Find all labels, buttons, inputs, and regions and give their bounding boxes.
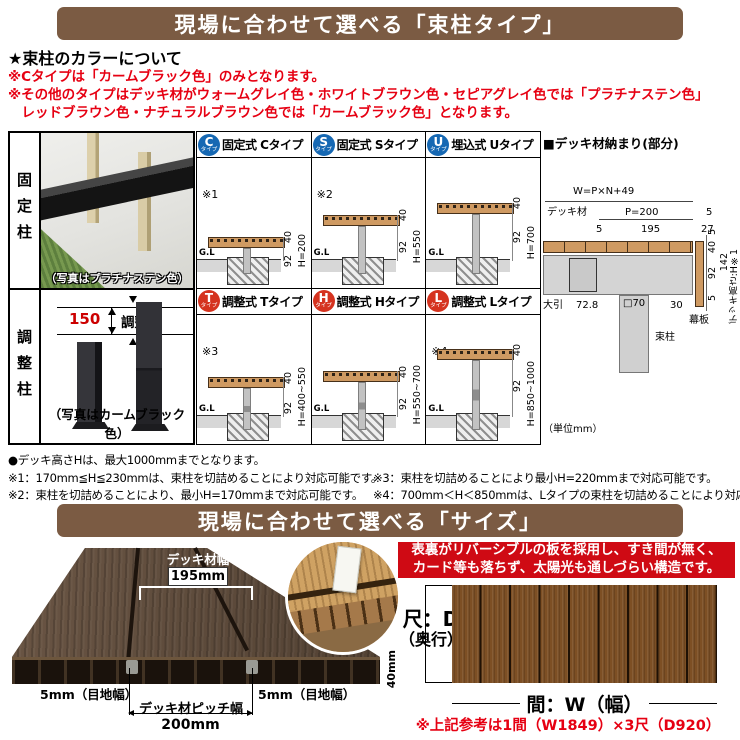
board-width-label: デッキ材幅 bbox=[156, 549, 240, 568]
type-title: 調整式 Hタイプ bbox=[337, 293, 419, 310]
type-diagram: G.L 40 92 H=700 bbox=[426, 158, 540, 288]
feature-line1: 表裏がリバーシブルの板を採用し、すき間が無く、 bbox=[398, 542, 735, 560]
deck-board-label: デッキ材 bbox=[547, 208, 587, 218]
fascia-label: 幕板 bbox=[689, 316, 709, 326]
type-title: 調整式 Tタイプ bbox=[222, 293, 302, 310]
type-cell-header: L タイプ 調整式 Lタイプ bbox=[426, 289, 540, 315]
dim-5-right: 5 bbox=[706, 208, 712, 218]
dim-92: 92 bbox=[399, 398, 409, 410]
deck-board bbox=[437, 203, 514, 214]
gl-label: G.L bbox=[199, 248, 215, 258]
type-note-ref: ※1 bbox=[202, 188, 218, 201]
type-cell-l: L タイプ 調整式 Lタイプ ※4 G.L 40 92 H=850~1000 bbox=[426, 289, 540, 445]
dim-line bbox=[649, 703, 717, 704]
deck-front-face bbox=[12, 657, 380, 684]
dim-line bbox=[452, 703, 520, 704]
adjustable-post-drawing: 150 調整 （写真はカームブラック色） bbox=[41, 290, 193, 445]
note-3: ※3：束柱を切詰めることにより最小H=220mmまで対応可能です。 bbox=[373, 470, 717, 486]
type-cell-header: H タイプ 調整式 Hタイプ bbox=[312, 289, 426, 315]
dim-height: H=400~550 bbox=[298, 367, 308, 426]
dim-5a: 5 bbox=[708, 229, 718, 235]
dim-height: H=550~700 bbox=[413, 365, 423, 424]
banner-title: 現場に合わせて選べる「束柱タイプ」 bbox=[175, 9, 566, 39]
detail-title: ■デッキ材納まり(部分) bbox=[543, 133, 679, 152]
dim-line-white bbox=[140, 586, 252, 588]
dim-92: 92 bbox=[513, 231, 523, 243]
gl-label: G.L bbox=[428, 248, 444, 258]
type-cell-header: C タイプ 固定式 Cタイプ bbox=[197, 132, 311, 158]
fixed-post-photo: （写真はプラチナステン色） bbox=[41, 133, 193, 288]
type-l-badge-icon: L タイプ bbox=[427, 290, 449, 312]
fascia-board bbox=[695, 241, 704, 307]
deck-height-label: デッキ高さ:H※1 bbox=[730, 249, 740, 324]
dim-tick-white bbox=[251, 586, 253, 600]
dim-5b: 5 bbox=[708, 295, 718, 301]
pitch-dim-line bbox=[129, 713, 252, 714]
badge-sub: タイプ bbox=[430, 304, 447, 310]
type-s-badge-icon: S タイプ bbox=[313, 134, 335, 156]
dim-728: 72.8 bbox=[576, 301, 598, 311]
type-title: 埋込式 Uタイプ bbox=[451, 136, 533, 153]
type-cell-s: S タイプ 固定式 Sタイプ ※2 G.L 40 92 H=550 bbox=[312, 132, 426, 288]
unit-label: （単位mm） bbox=[543, 425, 602, 435]
color-section-heading: ★束柱のカラーについて bbox=[8, 45, 182, 69]
arrow-down-icon bbox=[108, 327, 116, 334]
dim-height: H=550 bbox=[413, 230, 423, 263]
dim-height: H=700 bbox=[527, 226, 537, 259]
adjust-range-line-top bbox=[57, 307, 193, 308]
arrow-up-icon bbox=[108, 308, 116, 315]
gl-label: G.L bbox=[314, 248, 330, 258]
dim-40: 40 bbox=[284, 372, 294, 384]
dim-30: 30 bbox=[670, 301, 683, 311]
post-size-label: □70 bbox=[623, 299, 645, 309]
dim-195: 195 bbox=[641, 225, 660, 235]
width-dim-row: 間：W（幅） bbox=[452, 690, 717, 717]
color-notes: ※Cタイプは「カームブラック色」のみとなります。 ※その他のタイプはデッキ材がウ… bbox=[8, 69, 709, 123]
section-banner-sizes: 現場に合わせて選べる「サイズ」 bbox=[57, 504, 683, 537]
pitch-label: デッキ材ピッチ幅 bbox=[116, 698, 266, 717]
note-1: ※1：170mm≦H≦230mmは、束柱を切詰めることにより対応可能です。 bbox=[8, 470, 382, 486]
post-type-grid: C タイプ 固定式 Cタイプ ※1 G.L 40 92 H=200 bbox=[196, 131, 541, 445]
post-bar bbox=[472, 214, 480, 274]
joint-width-label-right: 5mm（目地幅） bbox=[258, 684, 355, 703]
adjustable-post-row: 調整柱 150 調整 （写真はカームブラック色） bbox=[10, 290, 193, 445]
dim-p200: P=200 bbox=[625, 208, 659, 218]
reference-size-note: ※上記参考は1間（W1849）×3尺（D920） bbox=[398, 714, 738, 735]
type-diagram: G.L 40 92 H=550~700 bbox=[312, 315, 426, 445]
dim-40: 40 bbox=[513, 344, 523, 356]
type-note-ref: ※3 bbox=[202, 345, 218, 358]
fixed-photo-caption: （写真はプラチナステン色） bbox=[41, 270, 193, 286]
adjustable-post-label: 調整柱 bbox=[14, 329, 35, 407]
adjust-value: 150 bbox=[69, 310, 100, 328]
badge-letter: C bbox=[205, 136, 214, 148]
deck-plan-view bbox=[452, 585, 717, 683]
board-joint-clip bbox=[126, 660, 138, 674]
color-note-line3: レッドブラウン色・ナチュラルブラウン色では「カームブラック色」となります。 bbox=[8, 105, 709, 123]
fixed-post-label: 固定柱 bbox=[14, 172, 35, 250]
dim-92: 92 bbox=[399, 241, 409, 253]
depth-dim-bracket bbox=[425, 585, 452, 683]
note-2: ※2：束柱を切詰めることにより、最小H=170mmまで対応可能です。 bbox=[8, 487, 363, 503]
deck-board bbox=[208, 237, 285, 248]
dim-line bbox=[599, 219, 693, 220]
gl-label: G.L bbox=[199, 404, 215, 414]
type-h-badge-icon: H タイプ bbox=[313, 290, 335, 312]
post-bar bbox=[472, 360, 480, 430]
dim-tick-white bbox=[139, 586, 141, 600]
deck-board bbox=[208, 377, 285, 388]
dim-40: 40 bbox=[284, 231, 294, 243]
type-diagram: ※4 G.L 40 92 H=850~1000 bbox=[426, 315, 540, 445]
dim-line bbox=[545, 201, 693, 202]
type-title: 固定式 Cタイプ bbox=[222, 136, 303, 153]
note-4: ※4：700mm＜H＜850mmは、Lタイプの束柱を切詰めることにより対応可能で… bbox=[373, 487, 740, 503]
badge-letter: S bbox=[319, 136, 328, 148]
dim-40: 40 bbox=[399, 209, 409, 221]
post-photo-panel: 固定柱 （写真はプラチナステン色） 調整柱 150 bbox=[8, 131, 195, 445]
deck-board bbox=[323, 215, 400, 226]
dim-height: H=200 bbox=[298, 234, 308, 267]
deck-board bbox=[323, 371, 400, 382]
gl-label: G.L bbox=[314, 404, 330, 414]
dimension-line bbox=[397, 215, 398, 261]
adjust-range-line-bottom bbox=[57, 334, 193, 335]
post-bar bbox=[243, 248, 251, 274]
dim-92: 92 bbox=[513, 380, 523, 392]
dim-height: H=850~1000 bbox=[527, 361, 537, 426]
section-banner-post-types: 現場に合わせて選べる「束柱タイプ」 bbox=[57, 7, 683, 40]
type-cell-h: H タイプ 調整式 Hタイプ G.L 40 92 H=550~700 bbox=[312, 289, 426, 445]
type-u-badge-icon: U タイプ bbox=[427, 134, 449, 156]
post-bar bbox=[358, 226, 366, 274]
type-t-badge-icon: T タイプ bbox=[198, 290, 220, 312]
post-bar bbox=[243, 388, 251, 430]
gl-label: G.L bbox=[428, 404, 444, 414]
width-label: 間：W（幅） bbox=[527, 690, 643, 717]
deck-board bbox=[437, 349, 514, 360]
post-bar bbox=[358, 382, 366, 430]
joist-bracket bbox=[569, 258, 597, 292]
badge-sub: タイプ bbox=[201, 148, 218, 154]
dim-w-formula: W=P×N+49 bbox=[573, 187, 634, 197]
type-cell-t: T タイプ 調整式 Tタイプ ※3 G.L 40 92 H=400~550 bbox=[197, 289, 311, 445]
thickness-label: 40mm bbox=[386, 650, 397, 688]
dim-5-left: 5 bbox=[596, 225, 602, 235]
joist-beam bbox=[543, 255, 693, 295]
deck-boards-section bbox=[543, 241, 693, 253]
type-cell-header: U タイプ 埋込式 Uタイプ bbox=[426, 132, 540, 158]
badge-sub: タイプ bbox=[430, 148, 447, 154]
type-cell-c: C タイプ 固定式 Cタイプ ※1 G.L 40 92 H=200 bbox=[197, 132, 311, 288]
type-diagram: ※3 G.L 40 92 H=400~550 bbox=[197, 315, 311, 445]
type-note-ref: ※2 bbox=[317, 188, 333, 201]
pitch-value: 200mm bbox=[129, 717, 252, 733]
joist-label: 大引 bbox=[543, 301, 563, 311]
dim-40: 40 bbox=[708, 241, 718, 253]
feature-callout: 表裏がリバーシブルの板を採用し、すき間が無く、 カード等も落ちず、太陽光も通しづ… bbox=[398, 542, 735, 578]
feature-line2: カード等も落ちず、太陽光も通しづらい構造です。 bbox=[398, 560, 735, 578]
catalog-page: 現場に合わせて選べる「束柱タイプ」 ★束柱のカラーについて ※Cタイプは「カーム… bbox=[0, 0, 740, 740]
note-main: ●デッキ高さHは、最大1000mmまでとなります。 bbox=[8, 452, 265, 468]
color-note-line1: ※Cタイプは「カームブラック色」のみとなります。 bbox=[8, 69, 709, 87]
board-width-value: 195mm bbox=[168, 567, 228, 586]
badge-sub: タイプ bbox=[201, 304, 218, 310]
type-title: 調整式 Lタイプ bbox=[451, 293, 531, 310]
type-diagram: ※1 G.L 40 92 H=200 bbox=[197, 158, 311, 288]
board-crosssection-inset-photo bbox=[288, 542, 398, 652]
type-title: 固定式 Sタイプ bbox=[337, 136, 418, 153]
adjustable-photo-caption: （写真はカームブラック色） bbox=[41, 404, 193, 442]
badge-sub: タイプ bbox=[315, 148, 332, 154]
type-c-badge-icon: C タイプ bbox=[198, 134, 220, 156]
deck-section-detail: ■デッキ材納まり(部分) W=P×N+49 デッキ材 P=200 5 5 195… bbox=[543, 131, 735, 445]
dim-92: 92 bbox=[708, 267, 718, 279]
color-note-line2: ※その他のタイプはデッキ材がウォームグレイ色・ホワイトブラウン色・セピアグレイ色… bbox=[8, 87, 709, 105]
post-label: 束柱 bbox=[655, 333, 675, 343]
type-cell-header: T タイプ 調整式 Tタイプ bbox=[197, 289, 311, 315]
type-diagram: ※2 G.L 40 92 H=550 bbox=[312, 158, 426, 288]
fixed-post-row: 固定柱 （写真はプラチナステン色） bbox=[10, 133, 193, 290]
deck-edge-beam bbox=[41, 154, 193, 223]
banner-title: 現場に合わせて選べる「サイズ」 bbox=[198, 506, 542, 536]
badge-letter: U bbox=[433, 136, 443, 148]
dim-92: 92 bbox=[284, 402, 294, 414]
type-cell-u: U タイプ 埋込式 Uタイプ G.L 40 92 H=700 bbox=[426, 132, 540, 288]
type-cell-header: S タイプ 固定式 Sタイプ bbox=[312, 132, 426, 158]
dim-92: 92 bbox=[284, 255, 294, 267]
dim-40: 40 bbox=[399, 366, 409, 378]
fixed-post-label-strip: 固定柱 bbox=[10, 133, 41, 288]
dim-40: 40 bbox=[513, 197, 523, 209]
adjustable-post-label-strip: 調整柱 bbox=[10, 290, 41, 445]
badge-sub: タイプ bbox=[315, 304, 332, 310]
